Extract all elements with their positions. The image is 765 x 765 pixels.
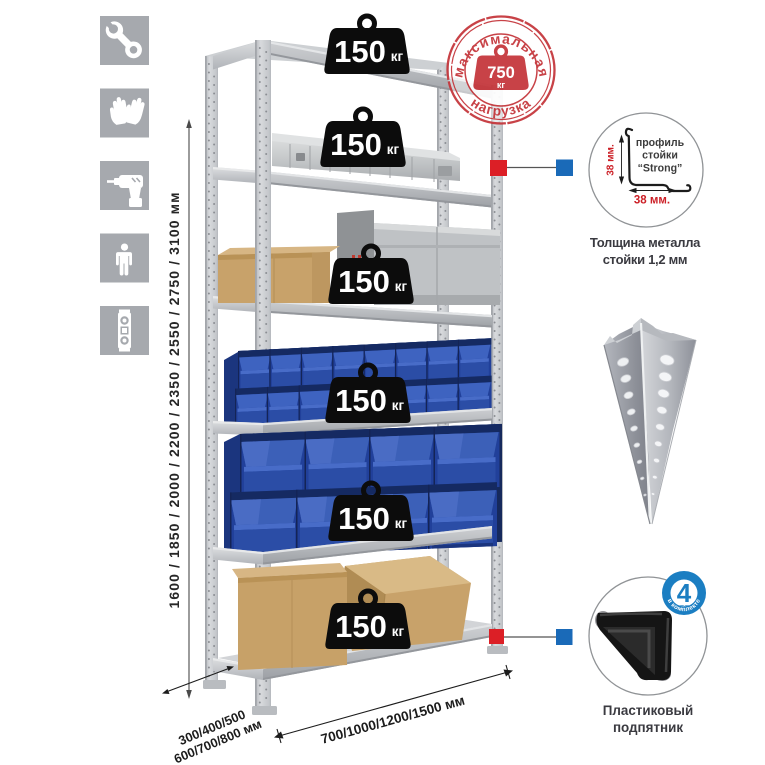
svg-text:кг: кг: [395, 279, 408, 294]
svg-text:1600 / 1850 / 2000 / 2200 / 23: 1600 / 1850 / 2000 / 2200 / 2350 / 2550 …: [166, 191, 182, 608]
svg-text:стойки 1,2 мм: стойки 1,2 мм: [603, 252, 688, 267]
svg-text:“Strong”: “Strong”: [638, 163, 683, 175]
svg-text:кг: кг: [387, 142, 400, 157]
svg-text:подпятник: подпятник: [613, 720, 683, 735]
svg-text:150: 150: [334, 34, 386, 69]
svg-text:профиль: профиль: [636, 137, 685, 149]
svg-text:38 мм.: 38 мм.: [634, 195, 670, 207]
svg-text:150: 150: [330, 127, 382, 162]
svg-text:38 мм.: 38 мм.: [606, 144, 617, 176]
svg-text:кг: кг: [395, 516, 408, 531]
svg-text:Толщина металла: Толщина металла: [590, 235, 701, 250]
svg-text:150: 150: [338, 501, 390, 536]
svg-text:кг: кг: [497, 80, 506, 90]
svg-text:кг: кг: [391, 49, 404, 64]
svg-text:Пластиковый: Пластиковый: [603, 703, 693, 718]
svg-text:кг: кг: [392, 624, 405, 639]
svg-text:150: 150: [335, 609, 387, 644]
svg-text:150: 150: [338, 264, 390, 299]
svg-text:кг: кг: [392, 398, 405, 413]
svg-text:150: 150: [335, 383, 387, 418]
svg-text:стойки: стойки: [642, 150, 678, 162]
